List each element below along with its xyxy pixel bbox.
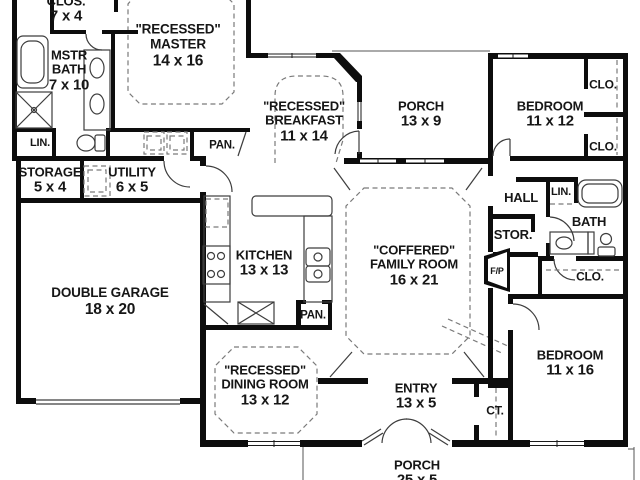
floorplan-drawing: [0, 0, 640, 480]
bathtub-icon: [17, 36, 48, 88]
kitchen-counter-left: [204, 196, 230, 302]
sink-icon: [306, 248, 330, 266]
fixtures: [16, 36, 622, 438]
kitchen-counter-top: [252, 196, 332, 216]
toilet2-icon: [601, 234, 612, 245]
stove-icon: [203, 246, 230, 284]
kitchen-counter-right: [304, 216, 332, 302]
floorplan: CLOS.7 x 4"RECESSED"MASTER14 x 16MSTRBAT…: [0, 0, 640, 480]
vanity-icon: [84, 50, 110, 130]
toilet-icon: [77, 135, 95, 151]
fireplace-icon: [484, 248, 510, 292]
